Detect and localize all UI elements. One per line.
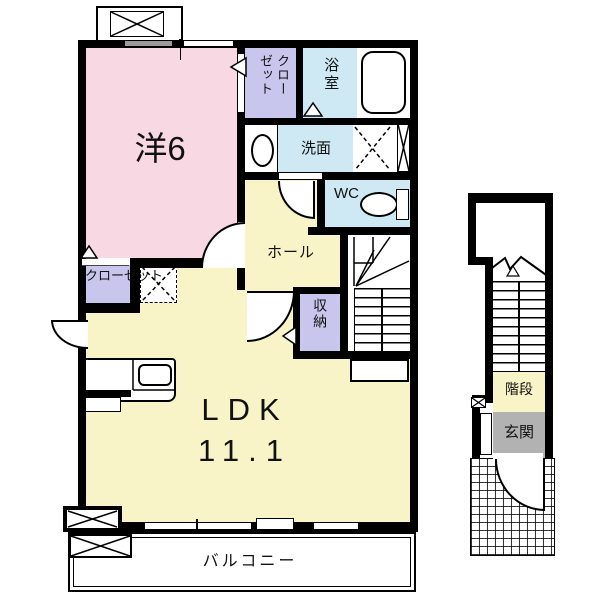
- floorplan: 洋6 クローゼット 浴室 洗面 WC ホール クローゼット 収納 LDK 11.…: [0, 0, 600, 600]
- stairs-main-treads: [354, 288, 411, 351]
- closet2-door-band: [82, 259, 129, 266]
- wall-bath-wash: [245, 118, 410, 125]
- wall-closet1-bath: [296, 48, 303, 118]
- label-entrance: 玄関: [493, 424, 545, 441]
- wall-wc-bottom: [308, 227, 410, 235]
- window-bottom-c: [314, 523, 358, 529]
- window-bottom-a: [145, 523, 251, 529]
- wall-main-right: [410, 40, 418, 532]
- washbasin-bowl: [251, 134, 274, 167]
- label-hall: ホール: [243, 244, 339, 261]
- door-gap-closet1: [238, 54, 244, 112]
- label-closet1: クローゼット: [251, 54, 291, 104]
- stairwell-landing: [476, 203, 545, 265]
- label-western: 洋6: [105, 130, 215, 168]
- label-ldk: LDK: [120, 392, 370, 428]
- window-top-tick: [179, 39, 182, 48]
- label-ldk-area: 11.1: [120, 433, 370, 469]
- wall-r-top: [468, 193, 553, 203]
- pipe-space: [397, 123, 410, 172]
- stairs-main-centerline: [381, 288, 383, 351]
- window-bottom-tick: [196, 519, 198, 533]
- door-arc-backdoor: [51, 320, 88, 349]
- washer-pan: [353, 125, 392, 172]
- door-gap-hall-wash: [279, 173, 322, 179]
- wall-r-left-mid: [485, 257, 493, 403]
- stairs-right-centerline: [518, 281, 520, 372]
- vent-box-bottomleft-inner: [67, 510, 118, 528]
- vent-box-top-inner: [110, 11, 164, 37]
- label-wc: WC: [334, 186, 351, 202]
- label-balcony: バルコニー: [145, 553, 355, 571]
- window-top-frameline: [180, 48, 181, 60]
- window-top-a: [125, 41, 172, 46]
- shoe-cabinet: [480, 413, 492, 455]
- wall-storage-top: [293, 287, 347, 294]
- kitchen-lower-cab: [84, 397, 121, 412]
- wall-closet2-bottom: [78, 303, 140, 313]
- vent-small-right: [471, 397, 486, 408]
- bathtub: [361, 51, 406, 114]
- label-bath: 浴室: [322, 57, 339, 113]
- wall-wash-hall: [245, 172, 410, 180]
- wall-stairs-bottom: [293, 351, 410, 359]
- wall-wc-left: [317, 180, 325, 227]
- wall-stairs-left: [340, 227, 348, 359]
- label-wash: 洗面: [283, 140, 349, 157]
- window-bottom-b: [256, 518, 294, 530]
- label-storage: 収納: [312, 298, 328, 346]
- window-top-b: [184, 41, 233, 46]
- wall-storage-left: [293, 292, 300, 358]
- wall-r-right: [545, 193, 553, 458]
- label-closet2: クローゼット: [85, 267, 129, 284]
- kitchen-sink: [138, 364, 172, 386]
- wall-r-left-upper: [468, 193, 476, 265]
- understair-closet: [350, 359, 409, 382]
- label-stairs: 階段: [493, 381, 545, 397]
- balcony-hatch-box: [69, 534, 132, 558]
- wall-main-left: [78, 40, 86, 532]
- toilet-bowl: [360, 192, 398, 217]
- toilet-tank: [396, 189, 409, 220]
